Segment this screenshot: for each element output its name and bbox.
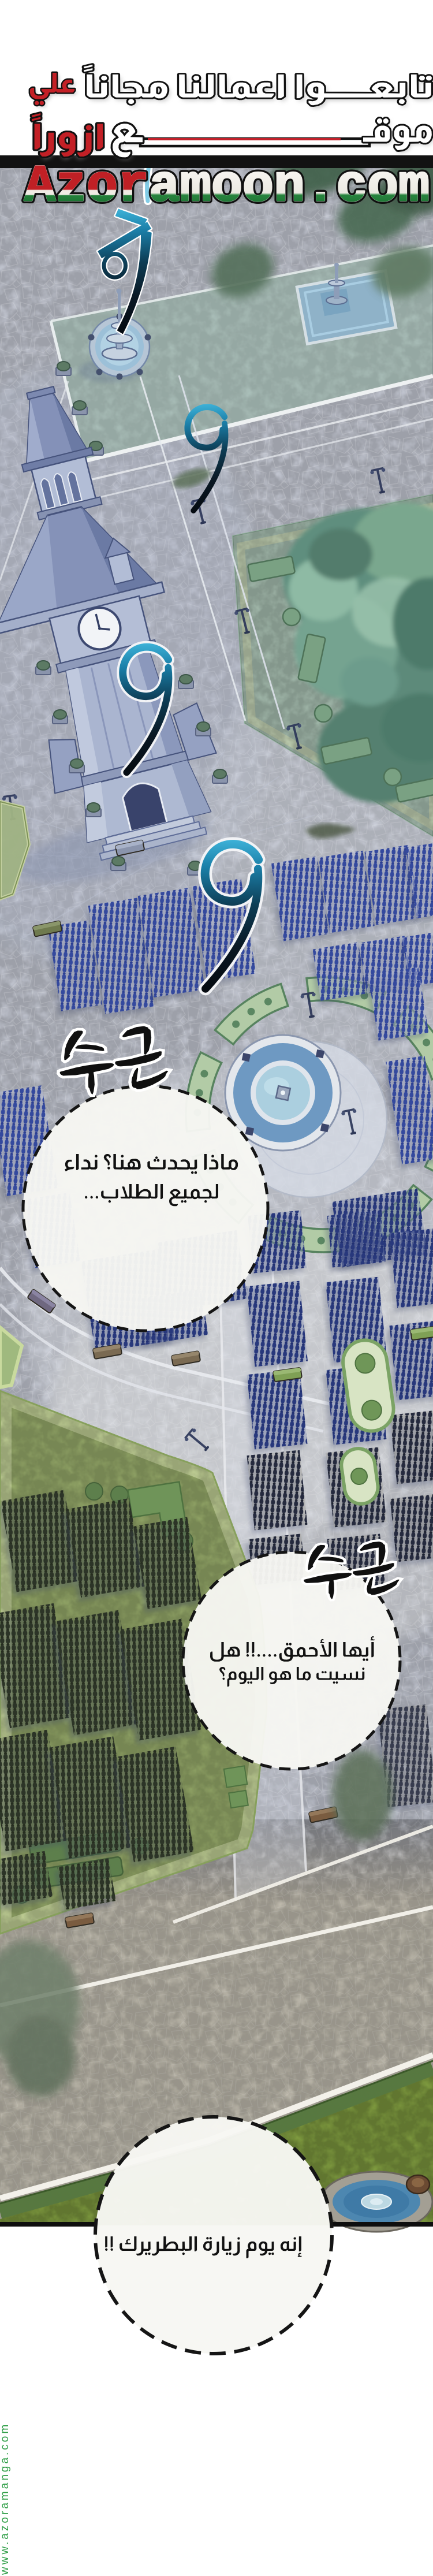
svg-text:Azor: Azor [24,158,149,217]
svg-text:amoon.com: amoon.com [149,158,430,217]
svg-text:www.azoramanga.com: www.azoramanga.com [0,2422,11,2575]
